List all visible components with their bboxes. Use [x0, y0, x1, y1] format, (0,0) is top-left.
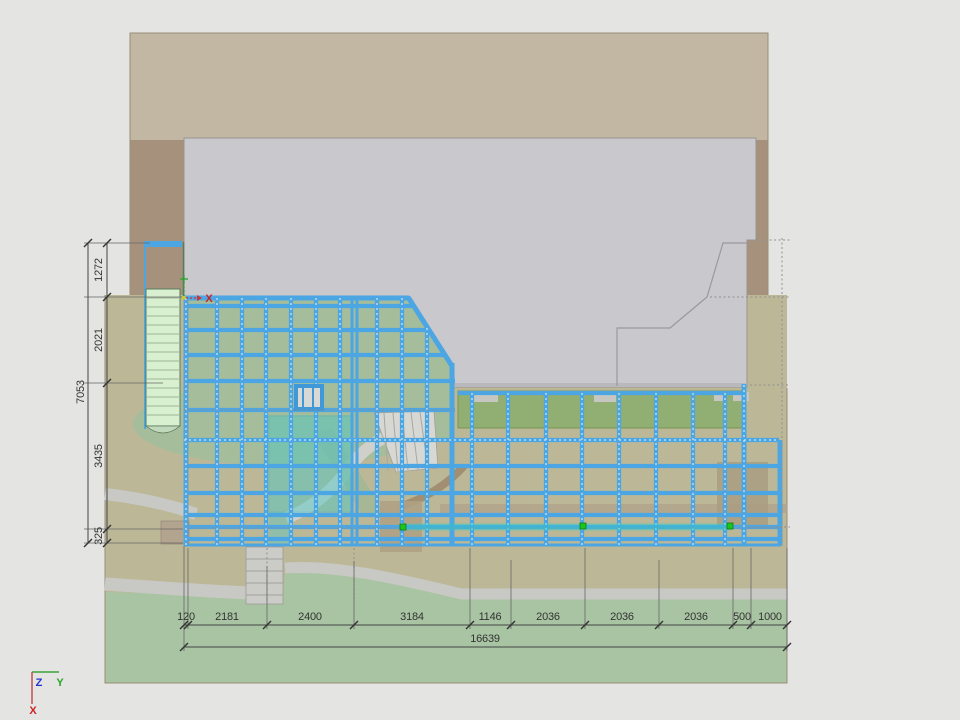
dim-value[interactable]: 1272 — [93, 258, 105, 282]
ucs-y-label: Y — [56, 677, 64, 689]
dim-value[interactable]: 325 — [93, 527, 105, 545]
dim-value[interactable]: 2400 — [298, 611, 322, 623]
stair-top-landing-beam — [144, 241, 182, 247]
origin-x-label: X — [205, 293, 213, 305]
cad-viewport[interactable]: 120 2181 2400 3184 1146 2036 2036 2036 5… — [0, 0, 960, 720]
dim-value[interactable]: 2036 — [684, 611, 708, 623]
garden-stair[interactable] — [246, 547, 283, 604]
ucs-x-label: X — [29, 705, 37, 717]
grip-middle[interactable] — [580, 523, 586, 529]
dim-total-width[interactable]: 16639 — [470, 633, 500, 645]
dim-value[interactable]: 2036 — [536, 611, 560, 623]
dim-value[interactable]: 1146 — [479, 611, 502, 623]
dim-value[interactable]: 2036 — [610, 611, 634, 623]
grip-end[interactable] — [727, 523, 733, 529]
deck-opening[interactable] — [296, 386, 322, 409]
dim-value[interactable]: 3184 — [400, 611, 424, 623]
dim-value[interactable]: 120 — [177, 611, 195, 623]
origin-point — [182, 296, 186, 300]
dim-value[interactable]: 1000 — [758, 611, 782, 623]
dim-total-height[interactable]: 7053 — [75, 380, 87, 404]
terrain-upper-band — [130, 33, 768, 140]
ucs-z-label: Z — [36, 677, 43, 689]
dim-value[interactable]: 2181 — [215, 611, 239, 623]
dim-value[interactable]: 3435 — [93, 444, 105, 468]
opening-frame — [296, 386, 322, 409]
plan-drawing[interactable]: 120 2181 2400 3184 1146 2036 2036 2036 5… — [0, 0, 960, 720]
stair-flight — [146, 289, 180, 426]
dim-value[interactable]: 500 — [733, 611, 751, 623]
dim-value[interactable]: 2021 — [93, 328, 105, 352]
grip-start[interactable] — [400, 524, 406, 530]
terrain-left-strip — [130, 140, 184, 302]
